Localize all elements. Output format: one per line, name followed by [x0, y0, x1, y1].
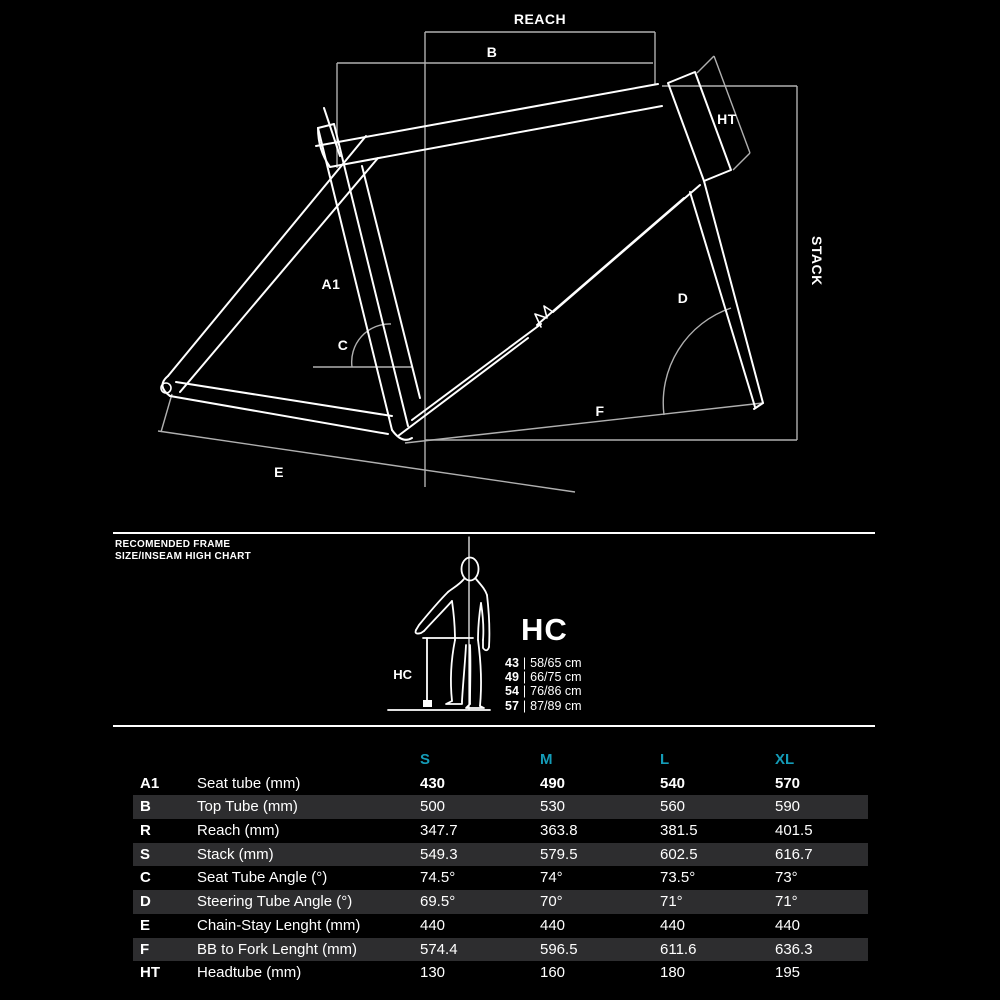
row-value-xl: 570 [775, 772, 868, 796]
row-letter: B [133, 795, 197, 819]
row-letter: D [133, 890, 197, 914]
d-label: D [678, 290, 689, 306]
row-value-m: 596.5 [540, 938, 660, 962]
column-header-xl: XL [775, 748, 868, 772]
row-value-xl: 440 [775, 914, 868, 938]
row-value-l: 560 [660, 795, 775, 819]
row-letter: F [133, 938, 197, 962]
row-value-m: 530 [540, 795, 660, 819]
row-value-xl: 590 [775, 795, 868, 819]
row-value-m: 579.5 [540, 843, 660, 867]
column-header-s: S [420, 748, 540, 772]
row-value-m: 160 [540, 961, 660, 985]
table-row: D Steering Tube Angle (°) 69.5° 70° 71° … [133, 890, 868, 914]
bike-geometry-chart: REACH B HT STACK A1 C D E F RECOMENDED F… [0, 0, 1000, 1000]
row-name: Steering Tube Angle (°) [197, 890, 420, 914]
row-value-l: 381.5 [660, 819, 775, 843]
row-name: Seat Tube Angle (°) [197, 866, 420, 890]
row-value-m: 70° [540, 890, 660, 914]
table-header-row: S M L XL [133, 748, 868, 772]
row-value-xl: 73° [775, 866, 868, 890]
e-label: E [274, 464, 284, 480]
hc-separator: | [519, 684, 530, 698]
row-value-l: 71° [660, 890, 775, 914]
hc-size-value: 49 [505, 670, 519, 684]
row-value-l: 540 [660, 772, 775, 796]
hc-size-value: 54 [505, 684, 519, 698]
hc-separator: | [519, 699, 530, 713]
geometry-table: S M L XL A1 Seat tube (mm) 430 490 540 5… [133, 748, 868, 985]
row-letter: S [133, 843, 197, 867]
inseam-figure-illustration: HC [0, 528, 1000, 728]
hc-separator: | [519, 670, 530, 684]
row-value-s: 440 [420, 914, 540, 938]
hc-title: HC [521, 612, 568, 648]
row-value-xl: 616.7 [775, 843, 868, 867]
hc-measure-label: HC [393, 667, 412, 682]
table-row: B Top Tube (mm) 500 530 560 590 [133, 795, 868, 819]
row-value-l: 180 [660, 961, 775, 985]
row-letter: HT [133, 961, 197, 985]
table-row: F BB to Fork Lenght (mm) 574.4 596.5 611… [133, 938, 868, 962]
row-value-m: 490 [540, 772, 660, 796]
table-row: A1 Seat tube (mm) 430 490 540 570 [133, 772, 868, 796]
hc-range-value: 58/65 cm [530, 656, 581, 670]
hc-size-item: 43|58/65 cm [505, 656, 582, 670]
hc-range-value: 66/75 cm [530, 670, 581, 684]
b-label: B [487, 44, 498, 60]
row-name: Top Tube (mm) [197, 795, 420, 819]
row-value-m: 440 [540, 914, 660, 938]
row-letter: A1 [133, 772, 197, 796]
hc-range-value: 76/86 cm [530, 684, 581, 698]
column-header-m: M [540, 748, 660, 772]
row-value-xl: 71° [775, 890, 868, 914]
row-value-l: 73.5° [660, 866, 775, 890]
hc-separator: | [519, 656, 530, 670]
hc-size-item: 54|76/86 cm [505, 684, 582, 698]
row-value-s: 500 [420, 795, 540, 819]
table-row: R Reach (mm) 347.7 363.8 381.5 401.5 [133, 819, 868, 843]
c-label: C [338, 337, 349, 353]
row-value-m: 363.8 [540, 819, 660, 843]
hc-size-value: 43 [505, 656, 519, 670]
reach-label: REACH [514, 11, 566, 27]
table-row: C Seat Tube Angle (°) 74.5° 74° 73.5° 73… [133, 866, 868, 890]
column-header-l: L [660, 748, 775, 772]
row-letter: C [133, 866, 197, 890]
row-value-s: 347.7 [420, 819, 540, 843]
row-name: Chain-Stay Lenght (mm) [197, 914, 420, 938]
f-label: F [595, 403, 604, 419]
row-name: BB to Fork Lenght (mm) [197, 938, 420, 962]
row-name: Seat tube (mm) [197, 772, 420, 796]
row-value-l: 440 [660, 914, 775, 938]
row-value-s: 69.5° [420, 890, 540, 914]
row-value-xl: 636.3 [775, 938, 868, 962]
row-name: Stack (mm) [197, 843, 420, 867]
row-letter: E [133, 914, 197, 938]
row-value-s: 430 [420, 772, 540, 796]
hc-size-item: 57|87/89 cm [505, 699, 582, 713]
hc-range-value: 87/89 cm [530, 699, 581, 713]
table-row: S Stack (mm) 549.3 579.5 602.5 616.7 [133, 843, 868, 867]
row-name: Headtube (mm) [197, 961, 420, 985]
hc-size-list: 43|58/65 cm 49|66/75 cm 54|76/86 cm 57|8… [505, 656, 582, 713]
table-row: HT Headtube (mm) 130 160 180 195 [133, 961, 868, 985]
hc-base-marker [423, 700, 432, 707]
row-value-l: 611.6 [660, 938, 775, 962]
row-value-xl: 195 [775, 961, 868, 985]
row-value-s: 130 [420, 961, 540, 985]
hc-size-value: 57 [505, 699, 519, 713]
row-letter: R [133, 819, 197, 843]
dimension-lines [158, 32, 797, 492]
frame-outline [161, 72, 763, 440]
row-value-xl: 401.5 [775, 819, 868, 843]
ht-label: HT [717, 111, 737, 127]
row-value-s: 549.3 [420, 843, 540, 867]
hc-size-item: 49|66/75 cm [505, 670, 582, 684]
row-name: Reach (mm) [197, 819, 420, 843]
row-value-l: 602.5 [660, 843, 775, 867]
a1-label: A1 [322, 276, 341, 292]
row-value-s: 74.5° [420, 866, 540, 890]
stack-label: STACK [809, 236, 825, 286]
row-value-m: 74° [540, 866, 660, 890]
row-value-s: 574.4 [420, 938, 540, 962]
table-row: E Chain-Stay Lenght (mm) 440 440 440 440 [133, 914, 868, 938]
frame-geometry-diagram: REACH B HT STACK A1 C D E F [0, 0, 1000, 528]
